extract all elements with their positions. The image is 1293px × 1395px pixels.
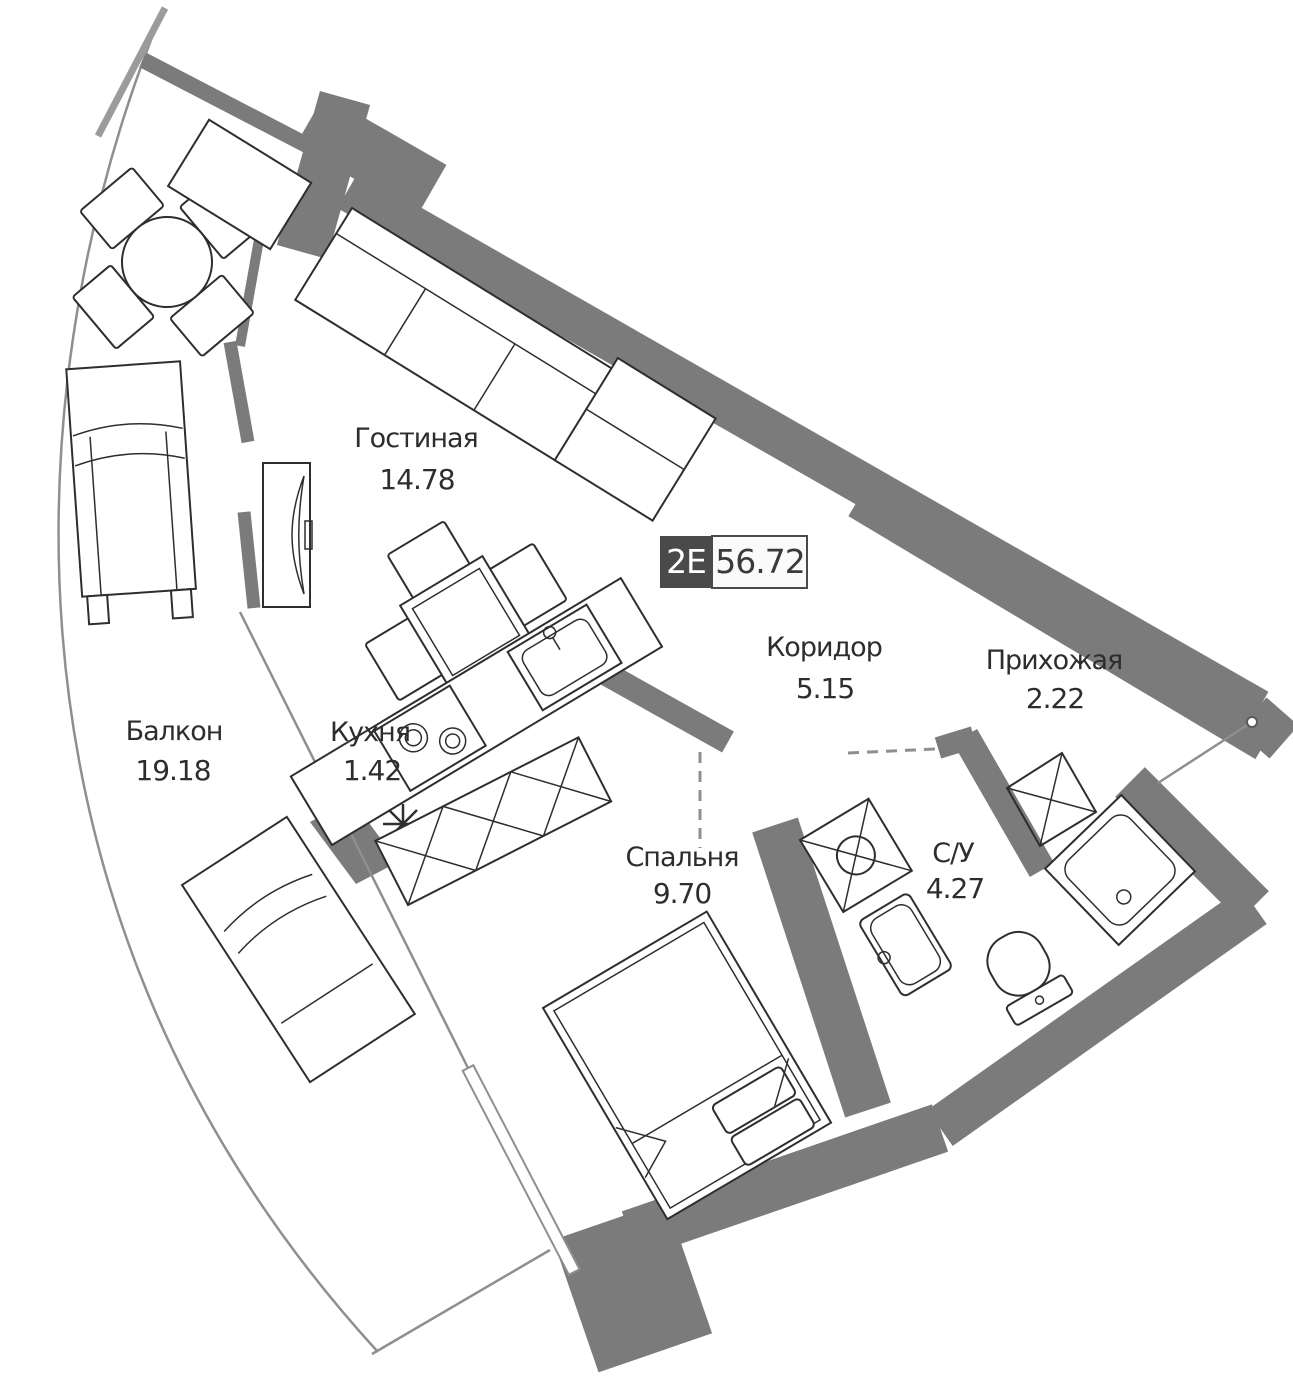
- unit-area-value: 56.72: [715, 542, 804, 581]
- entry-door-hinge: [1247, 717, 1257, 727]
- room-area-bathroom: 4.27: [926, 872, 984, 905]
- room-area-balcony: 19.18: [135, 754, 210, 787]
- balcony-glazing-strip: [463, 1065, 580, 1275]
- entry-door-leaf: [1158, 722, 1252, 783]
- room-label-kitchen: Кухня: [330, 717, 410, 748]
- room-label-corridor: Коридор: [766, 632, 882, 663]
- floor-plan-page: Гостиная 14.78 Коридор 5.15 Прихожая 2.2…: [0, 0, 1293, 1395]
- toilet: [974, 920, 1073, 1026]
- wall-tv-partition-upper: [230, 342, 248, 442]
- room-area-kitchen: 1.42: [343, 754, 401, 787]
- bathroom-door-opening: [848, 749, 936, 753]
- wall-bottom-right: [940, 906, 1254, 1128]
- armchair: [66, 361, 198, 624]
- unit-type-label: 2Е: [666, 542, 706, 581]
- wall-entry-cap: [1252, 714, 1284, 742]
- room-label-balcony: Балкон: [126, 716, 223, 747]
- room-label-bathroom: С/У: [932, 838, 974, 869]
- room-area-living: 14.78: [379, 463, 454, 496]
- room-label-bedroom: Спальня: [625, 842, 738, 873]
- unit-badge: 2Е 56.72: [660, 536, 807, 588]
- room-label-living: Гостиная: [354, 423, 478, 454]
- floor-plan-svg: Гостиная 14.78 Коридор 5.15 Прихожая 2.2…: [0, 0, 1293, 1395]
- wall-bath-hall: [965, 736, 1042, 870]
- room-label-hallway: Прихожая: [986, 645, 1123, 676]
- bathroom-sink: [856, 892, 953, 998]
- room-area-bedroom: 9.70: [653, 877, 711, 910]
- wall-tv-partition-lower: [244, 512, 254, 608]
- tv: [263, 463, 312, 607]
- room-area-hallway: 2.22: [1026, 682, 1084, 715]
- room-area-corridor: 5.15: [796, 672, 854, 705]
- balcony-bottom-edge: [372, 1250, 550, 1354]
